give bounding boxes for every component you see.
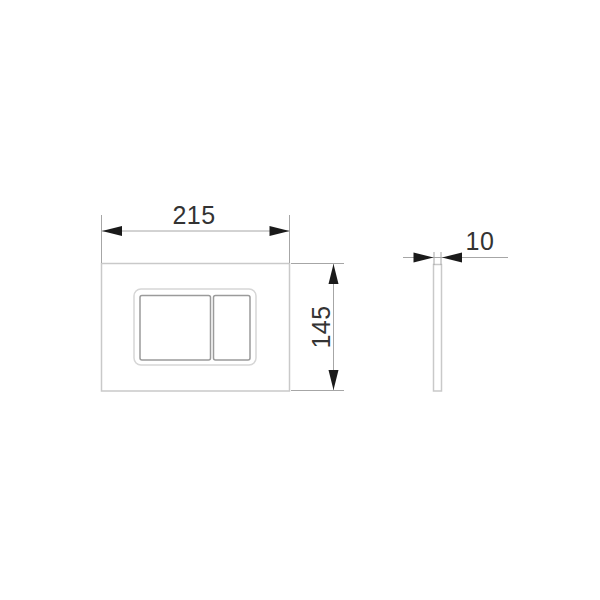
depth-arrowhead-left [414,253,434,263]
depth-arrowhead-right [442,253,462,263]
large-flush-button-outline [140,296,211,361]
depth-dimension: 10 [403,227,508,265]
small-flush-button-outline [214,296,251,361]
height-dimension: 145 [291,264,344,391]
height-arrowhead-top [329,264,339,284]
width-dimension: 215 [102,201,290,263]
width-arrowhead-right [270,226,290,236]
front-view [102,264,290,392]
plate-side-outline [434,265,442,392]
depth-dimension-label: 10 [466,227,495,255]
drawing-canvas: 215 145 10 [0,0,600,600]
flush-plate-technical-drawing: 215 145 10 [0,0,600,600]
width-arrowhead-left [102,226,122,236]
width-dimension-label: 215 [172,201,215,229]
side-view [434,265,442,392]
height-dimension-label: 145 [307,305,335,348]
height-arrowhead-bottom [329,370,339,390]
